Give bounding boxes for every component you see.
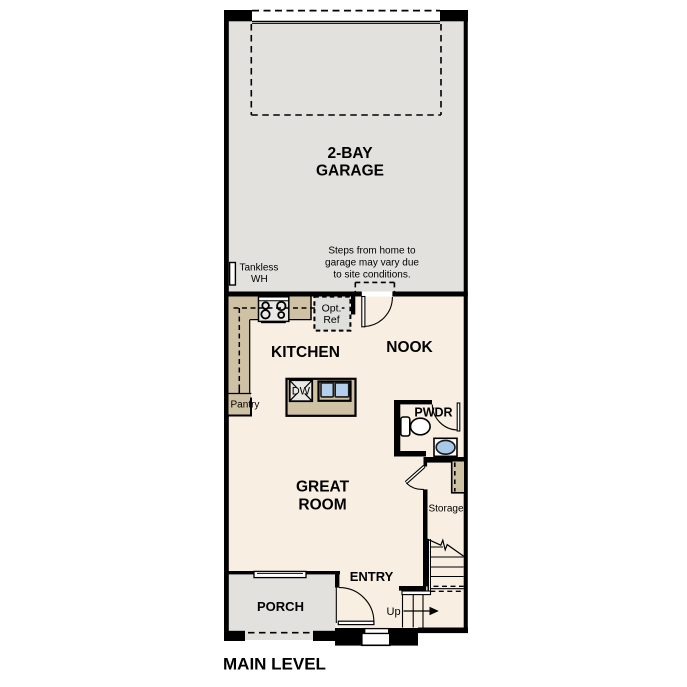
svg-text:garage may vary due: garage may vary due bbox=[325, 258, 419, 269]
svg-text:ROOM: ROOM bbox=[298, 497, 346, 514]
svg-text:WH: WH bbox=[251, 274, 268, 285]
svg-text:Opt.: Opt. bbox=[322, 302, 342, 314]
svg-text:Steps from home to: Steps from home to bbox=[328, 246, 416, 257]
svg-text:ENTRY: ENTRY bbox=[350, 569, 394, 584]
svg-text:DW: DW bbox=[292, 386, 311, 398]
svg-text:Ref: Ref bbox=[323, 314, 339, 326]
svg-text:Pantry: Pantry bbox=[231, 400, 260, 411]
svg-text:GREAT: GREAT bbox=[296, 479, 350, 496]
svg-text:PORCH: PORCH bbox=[257, 599, 304, 614]
svg-text:Up: Up bbox=[387, 606, 401, 618]
svg-text:Storage: Storage bbox=[428, 504, 463, 515]
svg-text:GARAGE: GARAGE bbox=[316, 162, 384, 179]
svg-text:Tankless: Tankless bbox=[240, 263, 279, 274]
svg-text:KITCHEN: KITCHEN bbox=[271, 344, 340, 361]
svg-text:2-BAY: 2-BAY bbox=[327, 145, 373, 162]
svg-text:NOOK: NOOK bbox=[386, 339, 433, 356]
svg-text:MAIN LEVEL: MAIN LEVEL bbox=[223, 655, 326, 674]
svg-text:to site conditions.: to site conditions. bbox=[333, 270, 410, 281]
